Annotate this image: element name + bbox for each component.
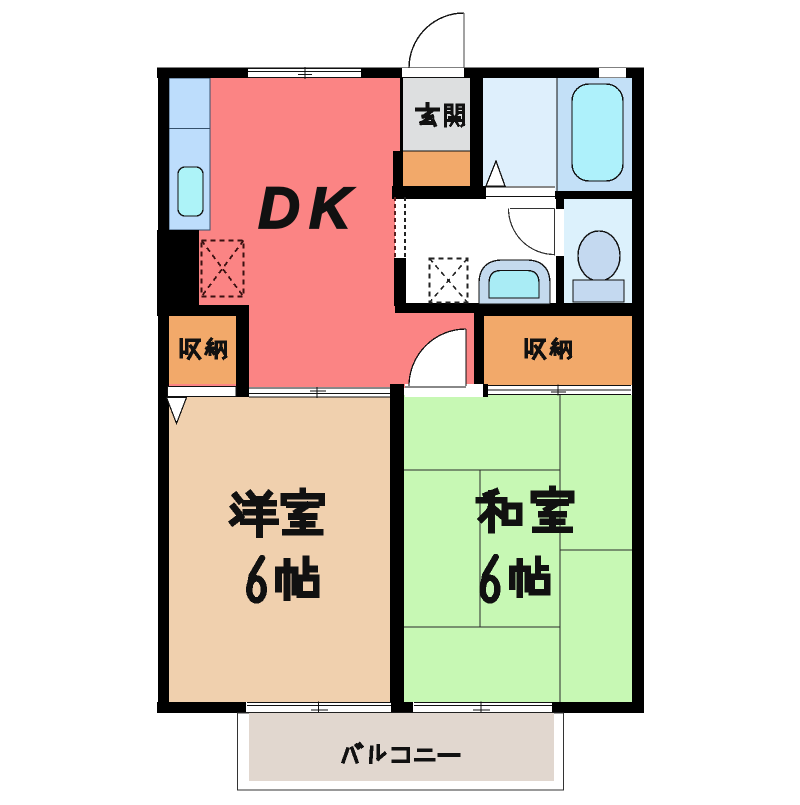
- svg-text:DK: DK: [258, 176, 360, 241]
